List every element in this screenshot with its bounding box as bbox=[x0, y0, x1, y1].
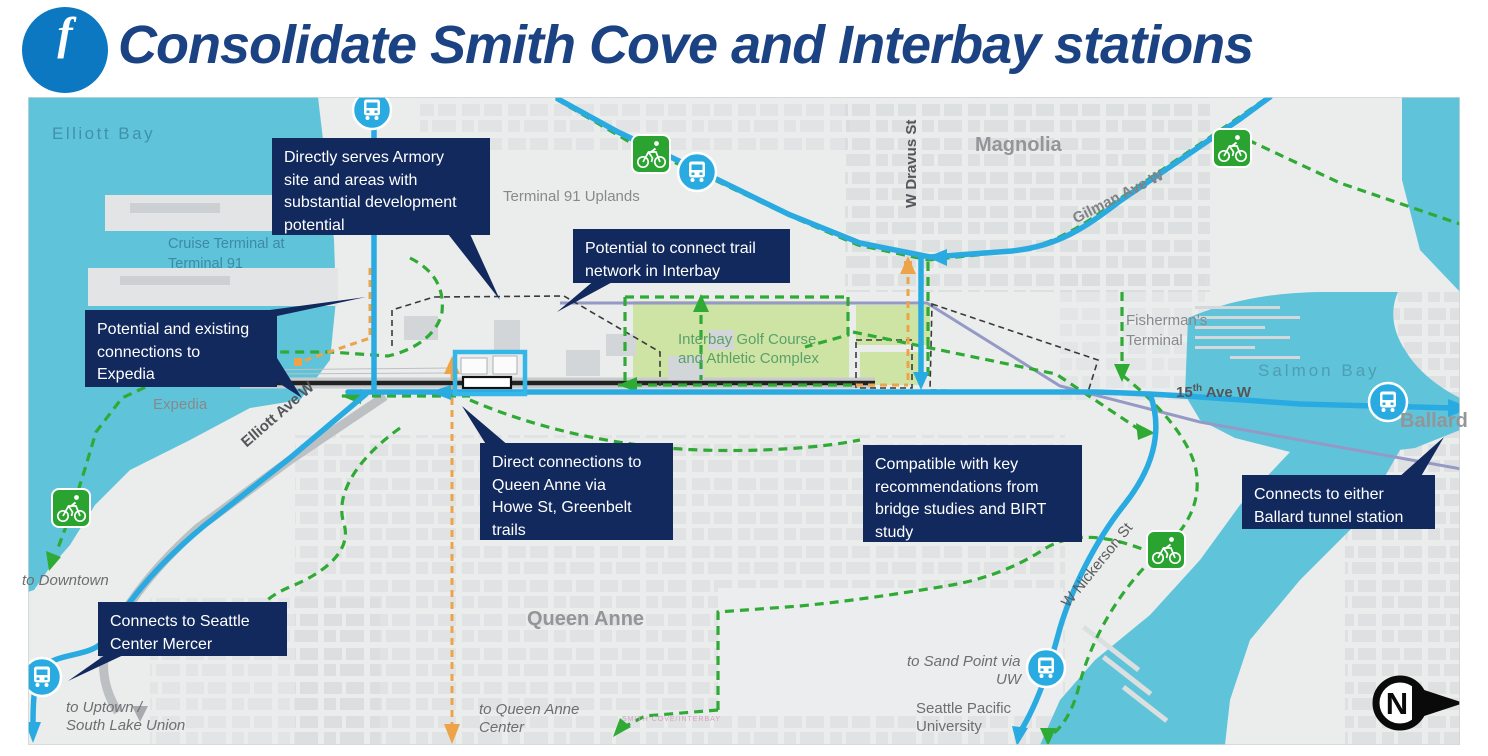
callout-queen-anne: Direct connections to Queen Anne via How… bbox=[480, 443, 673, 540]
label-15th-ave-w: 15th Ave W bbox=[1176, 383, 1251, 401]
callout-expedia: Potential and existing connections to Ex… bbox=[85, 310, 277, 387]
label-elliott-bay: Elliott Bay bbox=[52, 124, 155, 144]
label-to-uptown: to Uptown / bbox=[66, 699, 142, 716]
label-to-sand-point: to Sand Point via bbox=[907, 653, 1020, 670]
label-to-downtown: to Downtown bbox=[22, 572, 109, 589]
label-fishermans-terminal-2: Terminal bbox=[1126, 332, 1183, 349]
station-platform bbox=[463, 377, 511, 388]
label-smith-cove-tiny: SMITH COVE/INTERBAY bbox=[622, 716, 721, 723]
bike-icon bbox=[632, 135, 670, 173]
callout-bridge-studies: Compatible with key recommendations from… bbox=[863, 445, 1082, 542]
bus-icon bbox=[678, 153, 716, 191]
bike-icon bbox=[1213, 129, 1251, 167]
bike-icon bbox=[52, 489, 90, 527]
label-cruise-terminal: Cruise Terminal at bbox=[168, 236, 285, 252]
label-queen-anne: Queen Anne bbox=[527, 608, 644, 631]
label-expedia: Expedia bbox=[153, 396, 207, 413]
callout-seattle-center: Connects to Seattle Center Mercer bbox=[98, 602, 287, 656]
label-to-queen-anne-center-2: Center bbox=[479, 719, 524, 736]
svg-text:N: N bbox=[1386, 686, 1408, 721]
bus-icon bbox=[1027, 649, 1065, 687]
bike-icon bbox=[1147, 531, 1185, 569]
slide: f Consolidate Smith Cove and Interbay st… bbox=[0, 0, 1488, 756]
label-fishermans-terminal: Fisherman's bbox=[1126, 312, 1207, 329]
label-to-uptown-2: South Lake Union bbox=[66, 717, 185, 734]
label-ballard: Ballard bbox=[1400, 410, 1468, 433]
label-seattle-pacific: Seattle Pacific bbox=[916, 700, 1011, 717]
label-seattle-pacific-2: University bbox=[916, 718, 982, 735]
label-to-queen-anne-center: to Queen Anne bbox=[479, 701, 579, 718]
callout-ballard-tunnel: Connects to either Ballard tunnel statio… bbox=[1242, 475, 1435, 529]
label-terminal-91-uplands: Terminal 91 Uplands bbox=[503, 188, 640, 205]
label-magnolia: Magnolia bbox=[975, 134, 1062, 157]
bus-icon bbox=[353, 91, 391, 129]
label-golf-course-2: and Athletic Complex bbox=[678, 350, 819, 367]
callout-trail-network: Potential to connect trail network in In… bbox=[573, 229, 790, 283]
label-golf-course: Interbay Golf Course bbox=[678, 331, 816, 348]
callout-armory: Directly serves Armory site and areas wi… bbox=[272, 138, 490, 235]
label-to-sand-point-2: UW bbox=[996, 671, 1021, 688]
label-cruise-terminal-2: Terminal 91 bbox=[168, 256, 243, 272]
label-salmon-bay: Salmon Bay bbox=[1258, 361, 1380, 381]
label-w-dravus-st: W Dravus St bbox=[903, 120, 920, 208]
